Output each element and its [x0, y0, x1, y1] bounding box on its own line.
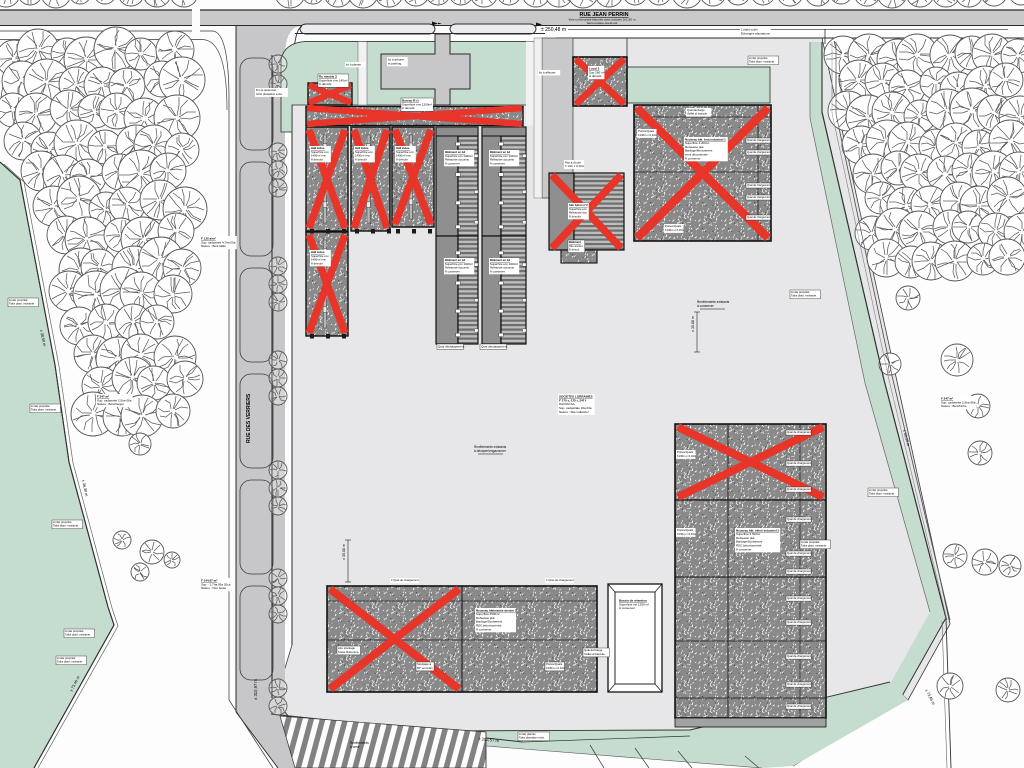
svg-text:Talus plant. existante: Talus plant. existante	[9, 302, 35, 306]
svg-text:Quai de chargement: Quai de chargement	[787, 551, 812, 555]
svg-text:Talus plantation exist.: Talus plantation exist.	[519, 736, 545, 740]
svg-text:Voillet al bascule: Voillet al bascule	[687, 112, 708, 116]
svg-text:Limite propriété: Limite propriété	[31, 404, 50, 408]
svg-text:Limite propriété: Limite propriété	[9, 298, 28, 302]
svg-text:Talus plant. existante: Talus plant. existante	[791, 294, 817, 298]
svg-text:Nature : Bois taillis: Nature : Bois taillis	[201, 244, 226, 248]
svg-text:RUE DES VERRIERS: RUE DES VERRIERS	[246, 393, 252, 443]
svg-text:À démol: À démol	[569, 248, 580, 252]
svg-text:±130m x 6,10m: ±130m x 6,10m	[546, 666, 566, 670]
svg-text:Talus plant. existante: Talus plant. existante	[57, 660, 83, 664]
svg-text:Nature : Bois/friche: Nature : Bois/friche	[941, 404, 967, 408]
svg-text:Nature : Bois/Verger: Nature : Bois/Verger	[97, 402, 124, 406]
svg-text:Quai de chargement: Quai de chargement	[787, 569, 812, 573]
svg-text:Limite propriété: Limite propriété	[791, 290, 810, 294]
svg-text:À démolir: À démolir	[355, 157, 367, 161]
svg-text:Talus plant. existante: Talus plant. existante	[869, 492, 895, 496]
svg-text:Quai déchargement: Quai déchargement	[481, 344, 508, 348]
svg-text:Quai de chargement: Quai de chargement	[787, 704, 812, 708]
svg-text:À conserver: À conserver	[445, 161, 460, 165]
svg-text:À démolir: À démolir	[396, 157, 408, 161]
svg-text:Quai de chargement: Quai de chargement	[787, 487, 812, 491]
svg-text:à décaper/engazonner: à décaper/engazonner	[474, 449, 507, 453]
svg-text:À démolir: À démolir	[569, 214, 581, 218]
svg-text:Limite propriété: Limite propriété	[57, 656, 76, 660]
svg-text:Libre plantation exist.: Libre plantation exist.	[256, 92, 283, 96]
svg-text:± 35,88 m: ± 35,88 m	[342, 544, 346, 560]
svg-text:60° env/plan: 60° env/plan	[417, 666, 433, 670]
svg-text:± Quai de chargement: ± Quai de chargement	[391, 578, 419, 582]
svg-text:Quai de chargement: Quai de chargement	[747, 183, 771, 187]
svg-text:Quai de chargement: Quai de chargement	[747, 215, 771, 219]
svg-text:lot à affecter: lot à affecter	[539, 70, 555, 74]
svg-text:Quai de chargement: Quai de chargement	[787, 620, 812, 624]
svg-text:Quai déchargement: Quai déchargement	[438, 344, 465, 348]
svg-text:Nature : Non boisé: Nature : Non boisé	[201, 586, 226, 590]
svg-text:Quai de chargement: Quai de chargement	[787, 517, 812, 521]
svg-text:À démolir: À démolir	[319, 82, 332, 86]
svg-text:Limite propriété: Limite propriété	[801, 540, 820, 544]
svg-text:Quai de chargement: Quai de chargement	[787, 461, 812, 465]
svg-text:Quai de chargement: Quai de chargement	[787, 654, 812, 658]
svg-text:Talus plant. existante: Talus plant. existante	[801, 544, 827, 548]
svg-text:Quai de chargement: Quai de chargement	[747, 195, 771, 199]
svg-text:à conserver: à conserver	[697, 304, 715, 308]
svg-text:À conserver: À conserver	[490, 269, 505, 273]
svg-text:±130m x 6,10m: ±130m x 6,10m	[638, 133, 658, 137]
svg-text:± 250,48 m: ± 250,48 m	[541, 27, 566, 33]
svg-text:Quai de chargement: Quai de chargement	[787, 682, 812, 686]
svg-text:Échangée plantations: Échangée plantations	[741, 30, 770, 35]
svg-text:Limite propriété: Limite propriété	[53, 520, 72, 524]
svg-text:À conserver: À conserver	[736, 547, 751, 551]
svg-text:± Quai de chargement: ± Quai de chargement	[546, 578, 574, 582]
svg-text:Nature : Site industriel: Nature : Site industriel	[559, 410, 589, 414]
svg-text:À démolir: À démolir	[311, 157, 323, 161]
svg-text:± 310,97 m: ± 310,97 m	[253, 679, 258, 700]
svg-text:Quai de chargement: Quai de chargement	[747, 150, 771, 154]
svg-text:À démolir: À démolir	[402, 106, 415, 110]
svg-text:Quai de chargement: Quai de chargement	[747, 138, 771, 142]
svg-text:À conserver: À conserver	[445, 269, 460, 273]
svg-text:lot à planter: lot à planter	[346, 62, 361, 66]
svg-text:Limite propriété: Limite propriété	[869, 488, 888, 492]
svg-text:Talus plant. existante: Talus plant. existante	[31, 408, 57, 412]
svg-text:Talus plant. existante: Talus plant. existante	[749, 60, 775, 64]
svg-text:Voillet al bascule: Voillet al bascule	[584, 652, 605, 656]
svg-text:Talus plant. existante: Talus plant. existante	[53, 524, 79, 528]
svg-text:À conserver: À conserver	[490, 161, 505, 165]
svg-text:Quai décharge: Quai décharge	[687, 108, 705, 112]
svg-text:± 35,88 m: ± 35,88 m	[691, 316, 695, 332]
svg-text:Talus plant. existante: Talus plant. existante	[65, 633, 91, 637]
svg-text:± 13m x 6,10m: ± 13m x 6,10m	[565, 164, 585, 168]
svg-text:Limite propriété: Limite propriété	[65, 629, 84, 633]
svg-text:À conserver: À conserver	[619, 606, 635, 610]
svg-text:À démolir: À démolir	[589, 74, 602, 78]
svg-text:Limite propriété: Limite propriété	[749, 56, 768, 60]
svg-text:et parking: et parking	[388, 61, 402, 65]
svg-text:Sortie Roberture: Sortie Roberture	[338, 650, 359, 654]
svg-text:±130m x 6,10m: ±130m x 6,10m	[677, 454, 697, 458]
svg-text:±130m x 6,10m: ±130m x 6,10m	[677, 532, 697, 536]
svg-text:±130m x 6,10m: ±130m x 6,10m	[665, 228, 685, 232]
svg-text:Limite plantée: Limite plantée	[519, 732, 536, 736]
svg-text:Sens unique ouest-est: Sens unique ouest-est	[587, 21, 618, 25]
svg-text:À conserver: À conserver	[476, 627, 491, 631]
svg-text:À conserver: À conserver	[685, 156, 700, 160]
svg-text:À démolir: À démolir	[311, 261, 323, 265]
svg-text:à venir: à venir	[350, 745, 361, 749]
svg-text:Quai de chargement: Quai de chargement	[787, 430, 812, 434]
svg-text:Quai de chargement: Quai de chargement	[787, 596, 812, 600]
